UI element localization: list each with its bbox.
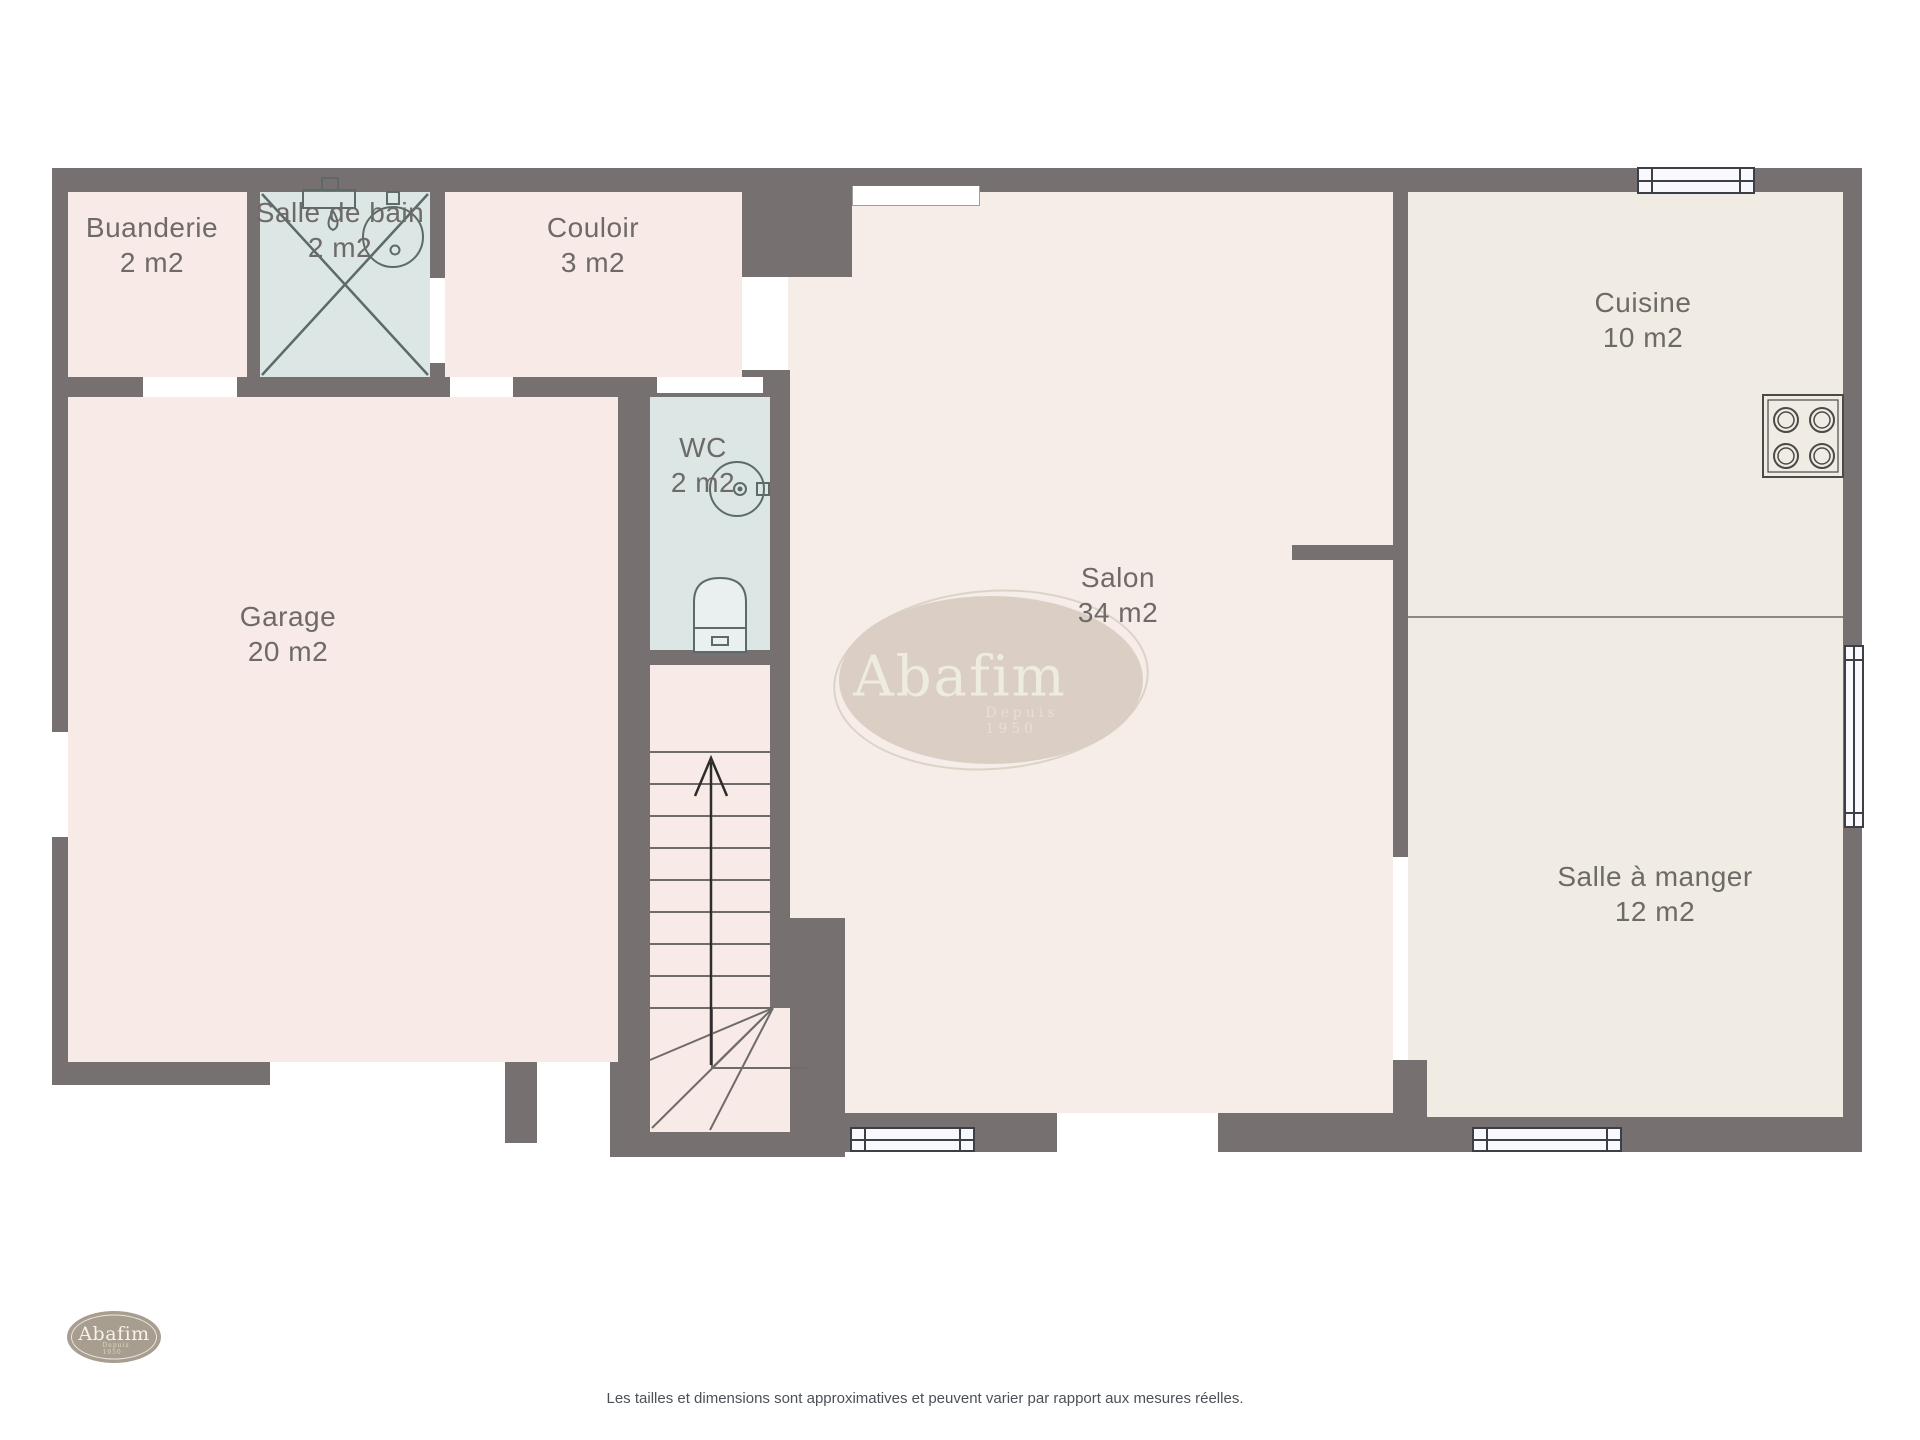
room-name: Couloir (547, 210, 639, 245)
door-opening-couloir-garage (450, 377, 513, 397)
stairwell-floor (650, 665, 770, 1008)
room-salon-floor (788, 192, 1393, 1113)
room-name: Garage (240, 599, 336, 634)
room-name: Salon (1078, 560, 1158, 595)
door-opening-salon-bottom (1057, 1113, 1218, 1152)
room-area: 20 m2 (240, 634, 336, 669)
room-label-cuisine: Cuisine 10 m2 (1595, 285, 1692, 355)
room-name: Salle à manger (1557, 859, 1752, 894)
door-opening-buanderie (143, 377, 237, 397)
door-opening-salon-sam (1393, 857, 1408, 1060)
room-name: WC (671, 430, 735, 465)
room-name: Buanderie (86, 210, 218, 245)
window-sam-right (1844, 645, 1864, 828)
wall-garage-bottom-end (505, 1062, 537, 1143)
window-cuisine-top (1637, 167, 1755, 194)
room-area: 10 m2 (1595, 320, 1692, 355)
window-salon-bottom (850, 1127, 975, 1152)
wall-stair-left (618, 377, 650, 1157)
wall-stair-left-foot (610, 1062, 618, 1157)
door-opening-sdb (430, 278, 445, 363)
cuisine-sam-separator-line (1408, 616, 1843, 618)
footer-disclaimer: Les tailles et dimensions sont approxima… (0, 1390, 1850, 1407)
room-name: Cuisine (1595, 285, 1692, 320)
garage-door-opening (270, 1062, 505, 1085)
room-name: Salle de bain (256, 195, 424, 230)
entry-door-recess (852, 186, 980, 206)
room-area: 2 m2 (256, 230, 424, 265)
wall-left (52, 168, 68, 1085)
wall-salon-stub (1292, 545, 1393, 560)
room-garage-floor (68, 397, 618, 1062)
wall-salon-sam-low (1393, 1060, 1427, 1117)
wall-stair-right (770, 377, 790, 1008)
wall-sam-bottom (1393, 1117, 1862, 1152)
room-area: 3 m2 (547, 245, 639, 280)
wall-salon-cuisine (1393, 168, 1408, 857)
room-label-salle-a-manger: Salle à manger 12 m2 (1557, 859, 1752, 929)
stairwell-winder-floor (650, 1008, 807, 1132)
room-area: 12 m2 (1557, 894, 1752, 929)
wall-entry-block (742, 192, 852, 277)
door-opening-garage-left (52, 732, 68, 837)
door-opening-couloir-salon (742, 277, 788, 370)
wall-wc-bottom (650, 650, 770, 665)
floor-plan: Buanderie 2 m2 Salle de bain 2 m2 Couloi… (0, 0, 1920, 1440)
room-cuisine-floor (1408, 192, 1843, 617)
room-label-salon: Salon 34 m2 (1078, 560, 1158, 630)
room-label-couloir: Couloir 3 m2 (547, 210, 639, 280)
wall-garage-bottom (52, 1062, 270, 1085)
room-label-buanderie: Buanderie 2 m2 (86, 210, 218, 280)
room-label-salle-de-bain: Salle de bain 2 m2 (256, 195, 424, 265)
logo-tagline: Depuis 1950 (102, 1342, 129, 1356)
room-area: 2 m2 (86, 245, 218, 280)
door-opening-wc (657, 377, 763, 393)
room-area: 34 m2 (1078, 595, 1158, 630)
room-label-wc: WC 2 m2 (671, 430, 735, 500)
window-sam-bottom (1472, 1127, 1622, 1152)
room-area: 2 m2 (671, 465, 735, 500)
room-label-garage: Garage 20 m2 (240, 599, 336, 669)
